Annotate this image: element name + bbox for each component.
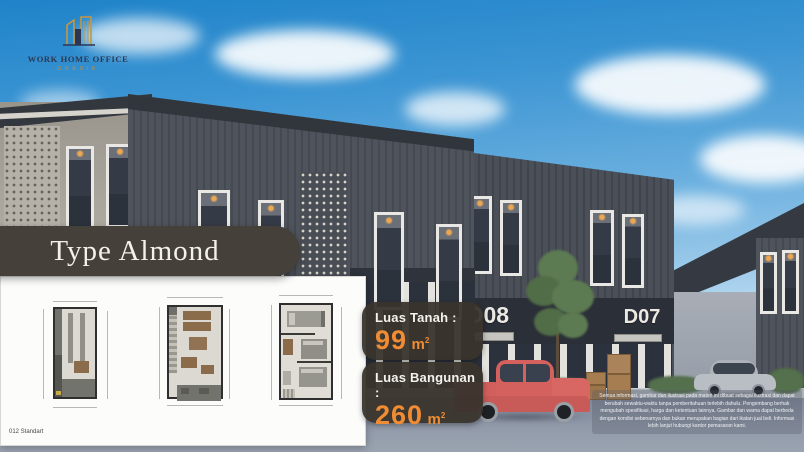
type-title: Type Almond [50,235,219,268]
plan-furniture [183,322,211,331]
plan-wall [321,311,325,327]
plan-wall [68,313,73,363]
plan-furniture [74,361,89,373]
floorplan-ground [53,307,97,399]
building-area-unit: m2 [428,411,446,428]
unit-sign-d07: D07 [610,306,674,329]
floorplan-panel: 012 Standart [0,276,366,446]
plan-furniture [183,311,211,320]
disclaimer: Semua informasi, gambar dan ilustrasi pa… [592,390,802,434]
plan-wall [169,307,177,315]
dimension-line [167,297,223,298]
floorplan-bedrooms [279,303,333,400]
plan-wall [297,361,331,363]
cloud [405,92,505,126]
plan-pillow [301,369,323,373]
logo-title: WORK HOME OFFICE [28,54,129,64]
plan-footnote: 012 Standart [9,429,43,435]
truck-pillar [523,364,526,382]
spec-badge-building: Luas Bangunan : 260 m2 [362,362,483,423]
dimension-line [107,311,108,399]
dimension-line [167,405,223,406]
plan-furniture [181,388,189,394]
plan-stairs [283,389,295,398]
spec-badge-land: Luas Tanah : 99 m2 [362,302,483,360]
box [607,354,631,374]
tree-foliage [558,312,588,338]
dimension-line [53,301,97,302]
building-area-label: Luas Bangunan : [375,370,483,400]
plan-stairs [169,315,177,373]
disclaimer-text: Semua informasi, gambar dan ilustrasi pa… [596,393,798,431]
dimension-line [341,307,342,399]
truck-wheel [554,402,574,422]
plan-furniture [283,371,291,385]
dimension-line [159,307,160,399]
plan-furniture [283,339,293,355]
plan-pillow [289,313,295,325]
flyer: D08 D07 [0,0,804,452]
type-pill: Type Almond [0,226,300,276]
work-home-office-logo-icon [55,8,101,54]
cloud [575,55,765,115]
land-area-value: 99 [375,325,407,355]
plan-furniture [201,365,214,374]
unit-signboard [614,334,662,342]
plan-wall [281,333,315,335]
land-area-label: Luas Tanah : [375,310,483,325]
building-area-value: 260 [375,400,423,430]
logo: WORK HOME OFFICE GRESIK [18,8,138,72]
window [66,146,94,230]
dimension-line [43,309,44,399]
plan-wall [80,313,85,363]
window [622,214,644,288]
floorplan-office [167,305,223,399]
dimension-line [271,305,272,400]
plan-pillow [303,341,323,345]
window [374,212,404,310]
dimension-line [279,295,333,296]
plan-furniture [189,337,207,350]
land-area-unit: m2 [412,336,430,353]
plan-door [56,391,61,395]
window [782,250,799,314]
logo-subtitle: GRESIK [57,66,99,72]
window [760,252,777,314]
plan-furniture [181,357,197,368]
cloud [215,30,395,78]
dimension-line [279,405,333,406]
dimension-line [229,309,230,399]
plan-furniture [199,388,209,394]
plan-zone [62,379,95,397]
dimension-line [53,407,97,408]
